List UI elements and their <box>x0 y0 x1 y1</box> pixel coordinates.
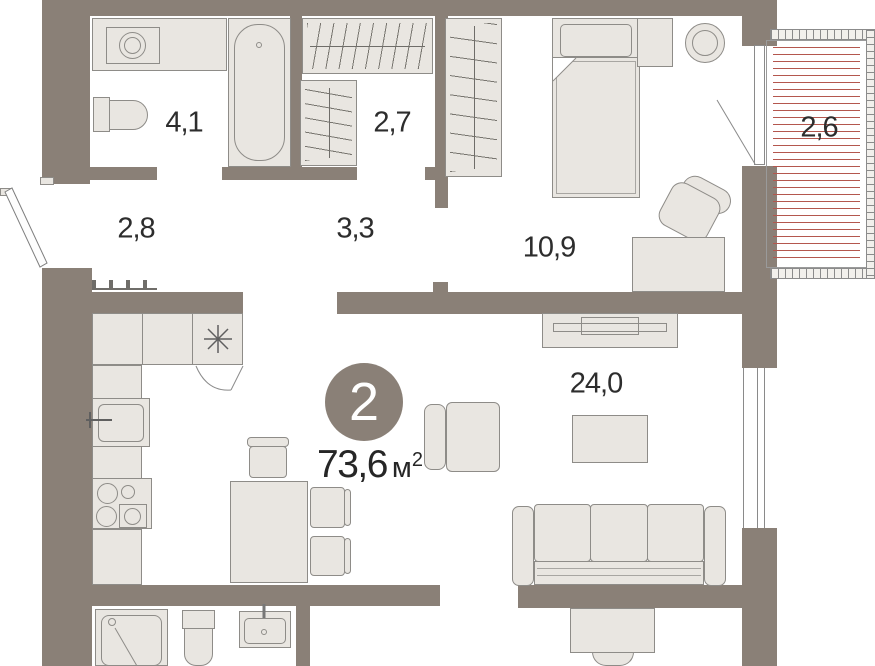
area-label-balcony: 2,6 <box>800 112 837 145</box>
armchair-seat <box>446 402 500 472</box>
shower-tray-inner <box>101 615 162 666</box>
fridge-door-leaf <box>231 366 243 390</box>
toilet-tank <box>93 97 110 132</box>
window-frame-line <box>743 368 744 528</box>
dining-chair-back <box>344 538 351 574</box>
coat-hook <box>109 280 113 289</box>
kitchen-cabinet <box>92 446 142 479</box>
toilet-tank-bottom <box>182 610 215 629</box>
bed-pillow <box>560 24 632 57</box>
kitchen-cabinet <box>92 365 142 399</box>
stove-burner <box>121 485 135 499</box>
coat-rack-rail <box>92 288 157 290</box>
rooms-count-badge: 2 <box>325 363 403 441</box>
kitchen-sink-basin <box>98 404 144 442</box>
balcony-railing-right <box>866 29 875 279</box>
kitchen-counter-cabinet <box>142 313 193 365</box>
washing-machine-drum-inner <box>124 37 141 54</box>
dining-chair-seat <box>249 446 287 478</box>
armchair-back <box>424 404 446 470</box>
toilet-bowl-bottom <box>184 628 213 666</box>
wall <box>90 167 157 180</box>
wall <box>90 585 440 606</box>
bed-blanket-inner-line <box>556 61 636 194</box>
sofa-cushion <box>647 504 704 562</box>
hanger-rail <box>310 46 425 47</box>
desk <box>632 237 725 292</box>
sofa-back-seam <box>537 568 701 569</box>
door-jamb-cap <box>40 177 54 185</box>
area-label-corridor: 3,3 <box>336 213 373 246</box>
dresser <box>637 18 673 67</box>
area-label-bedroom: 10,9 <box>523 232 575 265</box>
wall <box>296 606 310 666</box>
wall <box>92 292 243 313</box>
kitchen-cabinet <box>92 529 142 585</box>
total-area-value: 73,6 <box>317 443 387 486</box>
entry-door-leaf <box>5 188 47 267</box>
wall <box>742 528 777 666</box>
toilet-bowl <box>109 100 148 130</box>
wall <box>433 282 448 292</box>
wardrobe-rack-top <box>302 18 433 74</box>
wall <box>42 268 92 666</box>
wardrobe-rack-bedroom <box>445 18 502 177</box>
stove-burner <box>97 483 118 504</box>
coat-hook <box>126 280 130 289</box>
wall <box>42 0 742 16</box>
area-label-bathroom: 4,1 <box>165 107 202 140</box>
stove-burner <box>124 508 141 525</box>
chair-bottom <box>592 652 634 666</box>
sofa-back-seam <box>537 575 701 576</box>
coat-hook <box>92 280 96 289</box>
area-label-living-room: 24,0 <box>570 368 622 401</box>
window-glass-lines <box>757 368 765 528</box>
sofa-armrest <box>512 506 534 586</box>
kitchen-counter-corner <box>92 313 143 365</box>
door-jamb-cap <box>0 188 11 196</box>
stove-burner <box>96 506 117 527</box>
wall <box>518 585 742 608</box>
wall <box>42 0 90 184</box>
fridge-spot <box>192 313 243 365</box>
bathroom-sink-basin <box>244 618 286 644</box>
wall <box>222 167 357 180</box>
area-label-hallway: 2,8 <box>117 213 154 246</box>
total-area-superscript: 2 <box>412 449 422 471</box>
balcony-door <box>754 45 765 165</box>
sofa-armrest <box>704 506 726 586</box>
wall <box>337 292 742 314</box>
balcony-railing-top <box>770 29 875 40</box>
coat-hook <box>143 280 147 289</box>
sofa-cushion <box>590 504 648 562</box>
sofa-cushion <box>534 504 591 562</box>
coffee-table <box>572 415 648 463</box>
floor-plan: 4,1 2,7 2,8 3,3 10,9 2,6 24,0 2 73,6м2 <box>0 0 875 666</box>
desk-bottom <box>570 608 655 653</box>
balcony-door-swing <box>717 100 755 164</box>
total-area-unit: м <box>392 452 412 484</box>
dining-chair-seat <box>310 487 345 528</box>
tv-center-box <box>581 317 639 335</box>
hanger-rail <box>474 26 475 169</box>
bathtub-basin <box>234 24 285 161</box>
hanger-rail <box>329 88 330 158</box>
balcony-heating-lines <box>773 47 860 261</box>
area-label-dressing-room: 2,7 <box>373 107 410 140</box>
pouf-inner <box>692 30 718 56</box>
total-area-label: 73,6м2 <box>317 443 421 487</box>
wardrobe-rack-left <box>300 80 357 166</box>
fridge-door-swing <box>196 366 231 390</box>
dining-chair-back <box>344 489 351 526</box>
dining-chair-seat <box>310 536 345 576</box>
dining-table <box>230 481 308 583</box>
sofa-back <box>534 561 704 585</box>
balcony-railing-bottom <box>770 268 875 279</box>
